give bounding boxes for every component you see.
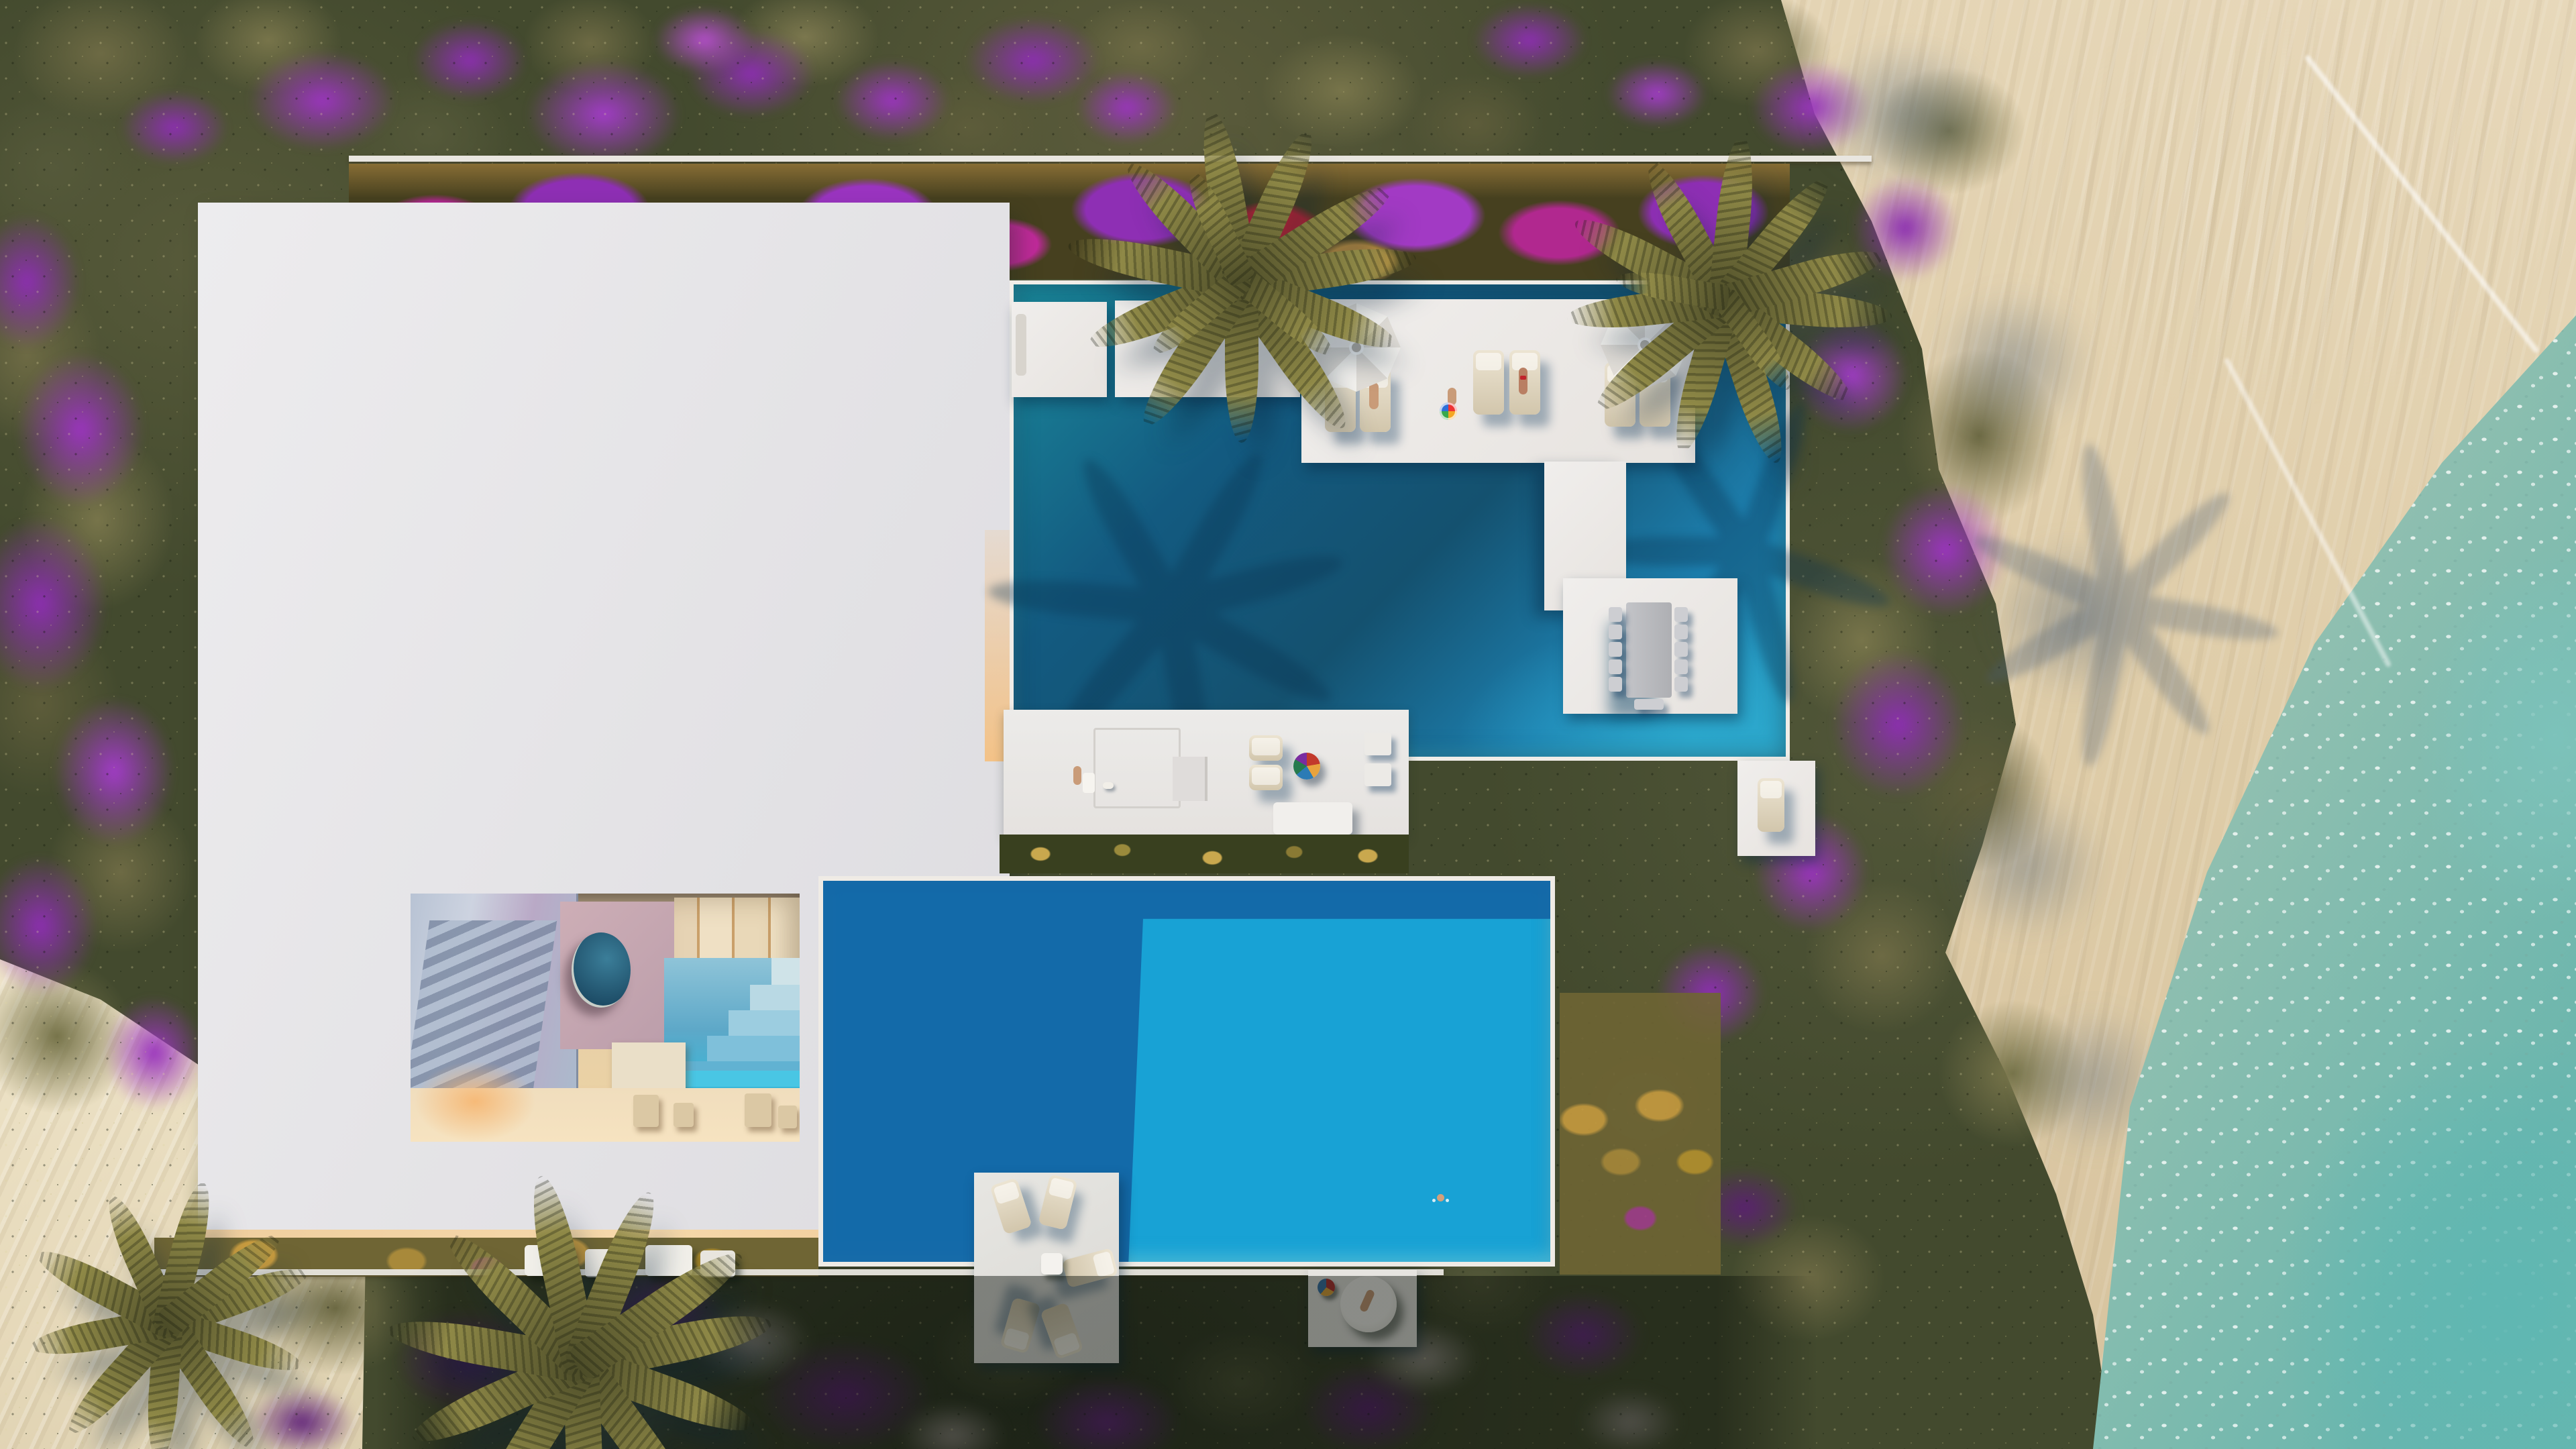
atrium-oval-feature bbox=[572, 932, 631, 1008]
hedge-strip bbox=[1000, 835, 1409, 873]
dog bbox=[1103, 782, 1114, 789]
dining-chair bbox=[1609, 642, 1622, 657]
atrium-water-step bbox=[729, 1010, 800, 1036]
tree-shadow-on-sand bbox=[1945, 792, 2106, 939]
red-bikini bbox=[1520, 376, 1526, 380]
rainbow-float bbox=[1440, 402, 1457, 420]
outdoor-sofa bbox=[645, 1245, 692, 1276]
dining-table bbox=[1626, 602, 1672, 698]
terrace-chair bbox=[1364, 763, 1391, 786]
terrace-chair bbox=[1364, 733, 1391, 755]
standing-figure bbox=[1073, 766, 1081, 785]
atrium-water-step bbox=[771, 958, 800, 985]
tree-shadow-on-sand bbox=[1932, 288, 2093, 436]
terrace-lounger bbox=[1249, 735, 1283, 761]
mosaic-pouf bbox=[1293, 753, 1320, 780]
atrium-water-step bbox=[750, 985, 800, 1010]
sunbather bbox=[1369, 382, 1379, 409]
platform-backrest bbox=[1016, 314, 1026, 376]
dining-chair bbox=[1674, 625, 1688, 639]
dining-chair bbox=[1609, 607, 1622, 622]
dining-chair bbox=[1674, 607, 1688, 622]
garden-wall bbox=[154, 1269, 1444, 1275]
atrium-seat-cube bbox=[778, 1106, 797, 1128]
atrium-ledge bbox=[612, 1042, 686, 1089]
atrium-seat-cube bbox=[745, 1093, 771, 1127]
sunlit-garden-band bbox=[1560, 993, 1721, 1275]
outdoor-sofa bbox=[1273, 802, 1352, 835]
parapet-wall bbox=[349, 156, 1872, 162]
sun-lounger bbox=[1473, 350, 1504, 415]
atrium-seat-cube bbox=[633, 1095, 659, 1127]
terrace-step bbox=[1173, 757, 1207, 801]
sunken-lounge-edge bbox=[1093, 728, 1181, 808]
dining-chair bbox=[1609, 625, 1622, 639]
terrace-lounger bbox=[1249, 765, 1283, 790]
dining-chair bbox=[1609, 677, 1622, 692]
lower-pool bbox=[818, 876, 1555, 1267]
scene bbox=[0, 0, 2576, 1449]
dining-chair bbox=[1674, 659, 1688, 674]
sun-lounger bbox=[1758, 778, 1784, 832]
dining-chair bbox=[1674, 677, 1688, 692]
sunbather-red-bikini bbox=[1519, 368, 1527, 394]
side-table bbox=[1041, 1253, 1063, 1275]
dining-bench bbox=[1634, 699, 1664, 710]
dining-chair bbox=[1609, 659, 1622, 674]
atrium-seat-cube bbox=[674, 1103, 694, 1127]
atrium-water-step bbox=[707, 1036, 800, 1061]
building-shadow-on-pool bbox=[823, 881, 1550, 1262]
swimmer bbox=[1437, 1194, 1444, 1201]
tree-shadow-on-sand bbox=[1811, 40, 1999, 188]
atrium bbox=[411, 894, 800, 1142]
atrium-warm-glow bbox=[415, 1061, 535, 1142]
towel bbox=[1083, 773, 1095, 793]
dining-chair bbox=[1674, 642, 1688, 657]
